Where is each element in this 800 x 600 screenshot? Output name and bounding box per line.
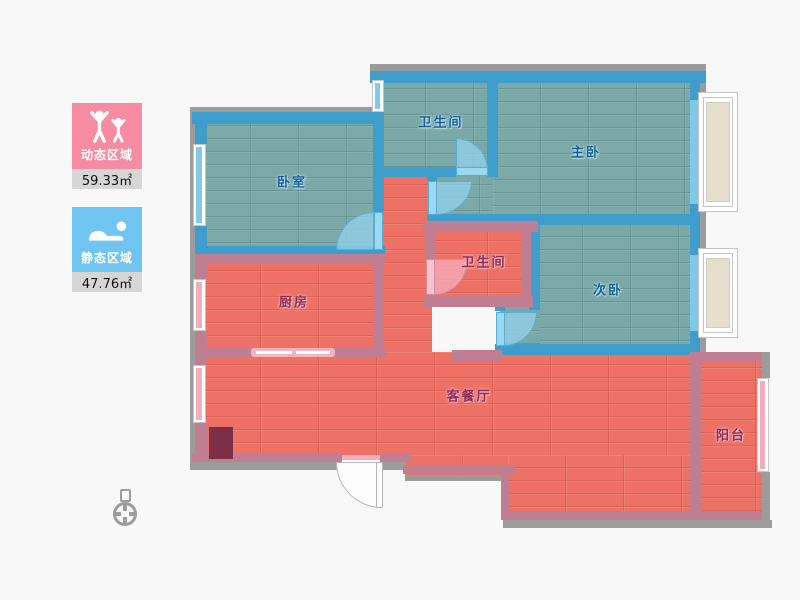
door-leaf-bathroom-middle[interactable] xyxy=(426,259,435,295)
floor-plan-canvas: 动态区域 59.33㎡ 静态区域 47.76㎡ xyxy=(0,0,800,600)
window-living-left-band xyxy=(196,368,202,420)
wall-dining-stub xyxy=(452,350,502,361)
wall-bedroom-left-a xyxy=(195,112,207,144)
sliding-door-kitchen-panel-a xyxy=(256,351,292,354)
door-leaf-bedroom[interactable] xyxy=(374,212,383,250)
room-label-balcony: 阳台 xyxy=(716,425,746,444)
exterior-wall-bottom-right xyxy=(503,520,705,528)
wall-balcony-top xyxy=(698,352,762,361)
room-label-second-bedroom: 次卧 xyxy=(593,280,623,299)
wall-kitchen-bottom-b xyxy=(331,347,385,358)
room-label-bathroom-top: 卫生间 xyxy=(418,112,463,131)
room-floor-living-dining-c[interactable] xyxy=(508,455,698,517)
door-leaf-entry[interactable] xyxy=(376,462,383,508)
people-arms-up-icon xyxy=(84,110,130,144)
wall-bathroom-middle-bottom xyxy=(423,296,533,307)
wall-living-bottom-right xyxy=(501,511,698,520)
cabinet xyxy=(209,427,233,459)
room-label-master-bedroom: 主卧 xyxy=(571,142,601,161)
compass-tick-s xyxy=(123,517,127,524)
window-bedroom-left-band xyxy=(196,147,202,223)
bay-window-master-sill xyxy=(706,102,730,202)
wall-balcony-left xyxy=(690,352,702,520)
compass-north-box xyxy=(120,489,131,502)
legend-dynamic-area: 59.33㎡ xyxy=(72,169,142,189)
room-floor-corridor[interactable] xyxy=(378,172,432,357)
wall-living-step-v xyxy=(501,465,510,517)
wall-top xyxy=(370,71,706,83)
room-label-living-dining: 客餐厅 xyxy=(446,386,491,405)
window-balcony-right-band xyxy=(760,381,765,469)
wall-second-bedroom-bottom xyxy=(495,344,698,355)
sliding-door-kitchen-panel-b xyxy=(296,351,330,354)
wall-living-bottom-left-b xyxy=(380,453,412,462)
wall-bathroom-middle-right xyxy=(521,221,531,307)
wall-living-left-a xyxy=(195,357,207,365)
wall-living-step-h xyxy=(403,465,515,474)
wall-kitchen-left-a xyxy=(195,258,207,279)
wall-bedroom-top xyxy=(192,112,384,124)
room-label-bathroom-middle: 卫生间 xyxy=(461,252,506,271)
wall-kitchen-top xyxy=(195,254,385,263)
door-leaf-bathroom-top[interactable] xyxy=(456,167,488,176)
compass-tick-w xyxy=(114,512,121,516)
wall-bathroom-master-divider xyxy=(487,71,498,177)
wall-bathroom-middle-left-a xyxy=(425,221,435,259)
room-floor-living-dining[interactable] xyxy=(203,352,698,460)
room-label-kitchen: 厨房 xyxy=(279,292,309,311)
window-bathroom-top-band xyxy=(375,83,380,109)
sleeping-person-icon xyxy=(84,217,130,247)
legend-dynamic-label: 动态区域 xyxy=(81,146,133,163)
wall-bathroom-top-bottom-a xyxy=(373,167,456,177)
legend-dynamic-card[interactable]: 动态区域 xyxy=(72,103,142,169)
window-kitchen-left-band xyxy=(196,282,202,328)
room-label-bedroom: 卧室 xyxy=(277,172,307,191)
wall-balcony-bottom xyxy=(698,511,762,520)
compass-tick-n xyxy=(123,504,127,511)
legend-static-area: 47.76㎡ xyxy=(72,272,142,292)
door-leaf-master-bedroom[interactable] xyxy=(428,181,437,215)
legend-static-label: 静态区域 xyxy=(81,249,133,266)
window-second-bedroom-right-band xyxy=(690,255,698,331)
compass-tick-e xyxy=(129,512,136,516)
bay-window-second-bedroom-sill xyxy=(706,258,730,328)
door-leaf-second-bedroom[interactable] xyxy=(496,312,505,346)
wall-kitchen-right xyxy=(373,256,384,357)
legend-static-card[interactable]: 静态区域 xyxy=(72,207,142,272)
window-master-right-band xyxy=(690,100,698,204)
